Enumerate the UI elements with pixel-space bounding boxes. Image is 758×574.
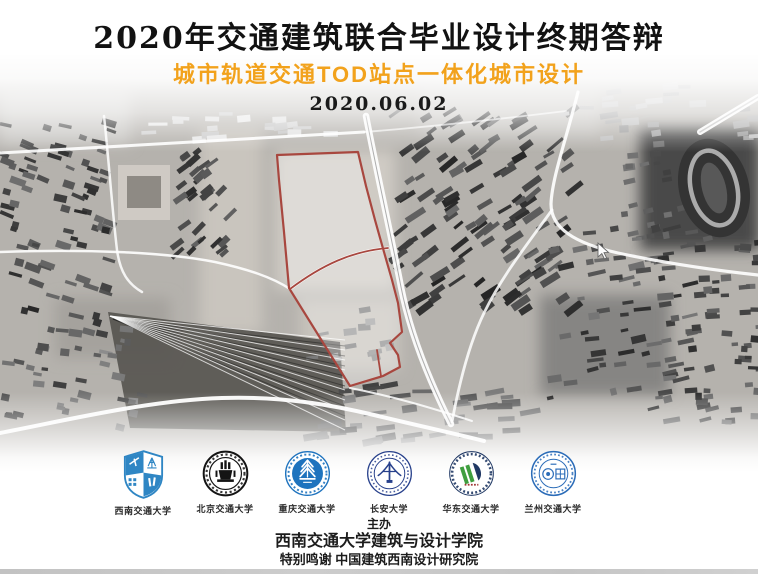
footer-block: 主办 西南交通大学建筑与设计学院 特别鸣谢 中国建筑西南设计研究院 — [0, 517, 758, 568]
university-item: 重庆交通大学 — [266, 450, 348, 518]
slide-title: 2020年交通建筑联合毕业设计终期答辩 — [0, 22, 758, 56]
ecjtu-seal-logo — [448, 450, 495, 497]
slide-subtitle: 城市轨道交通TOD站点一体化城市设计 — [0, 62, 758, 88]
university-item: 北京交通大学 — [184, 450, 266, 518]
university-name: 重庆交通大学 — [278, 502, 335, 515]
university-name: 北京交通大学 — [196, 502, 253, 515]
university-item: 兰州交通大学 — [512, 450, 594, 518]
university-name: 兰州交通大学 — [524, 502, 581, 515]
changan-seal-logo — [366, 450, 413, 497]
slide-date: 2020.06.02 — [0, 93, 758, 115]
title-block: 2020年交通建筑联合毕业设计终期答辩 城市轨道交通TOD站点一体化城市设计 2… — [0, 0, 758, 115]
university-item: 华东交通大学 — [430, 450, 512, 518]
bottom-gray-strip — [0, 569, 758, 574]
organizer-label: 主办 — [0, 517, 758, 531]
university-item: 西南交通大学 — [102, 450, 184, 518]
organizer-name: 西南交通大学建筑与设计学院 — [0, 532, 758, 551]
lzjtu-seal-logo — [530, 450, 577, 497]
university-name: 西南交通大学 — [114, 504, 171, 517]
special-thanks: 特别鸣谢 中国建筑西南设计研究院 — [0, 552, 758, 568]
university-logos-row: 西南交通大学 北京交通大学 — [102, 450, 598, 518]
university-item: 长安大学 — [348, 450, 430, 518]
university-name: 长安大学 — [370, 502, 408, 515]
bjtu-seal-logo — [202, 450, 249, 497]
university-name: 华东交通大学 — [442, 502, 499, 515]
swjtu-shield-logo — [123, 450, 164, 499]
cqjtu-seal-logo — [284, 450, 331, 497]
presentation-slide: 2020年交通建筑联合毕业设计终期答辩 城市轨道交通TOD站点一体化城市设计 2… — [0, 0, 758, 574]
